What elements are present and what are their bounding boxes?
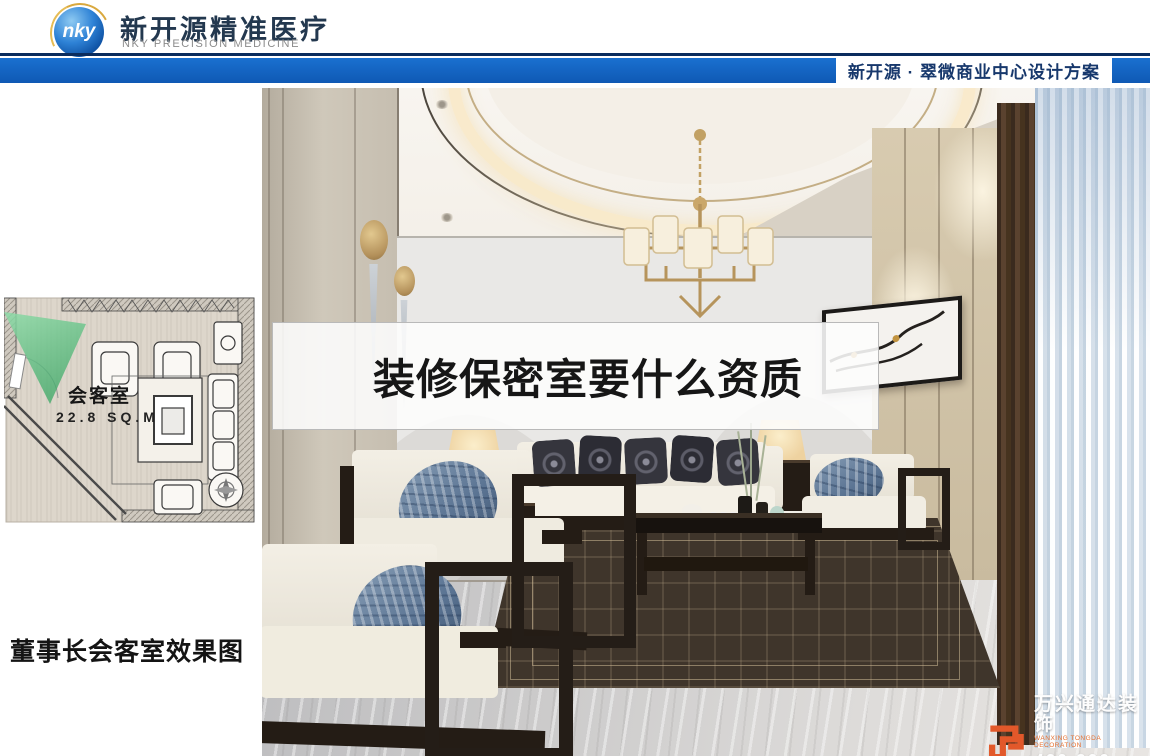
banner-bar-right bbox=[1112, 58, 1150, 83]
plan-table-inner bbox=[162, 408, 184, 434]
banner-bar-left bbox=[0, 58, 836, 83]
headline-text: 装修保密室要什么资质 bbox=[273, 346, 803, 407]
wall-ornament-icon bbox=[394, 266, 415, 296]
plan-sofa-cushion bbox=[213, 411, 234, 439]
logo-sphere-icon: nky bbox=[54, 7, 104, 57]
plan-caption: 董事长会客室效果图 bbox=[10, 632, 244, 668]
watermark-company-en: WANXING TONGDA DECORATION bbox=[1034, 736, 1150, 750]
chandelier bbox=[620, 128, 780, 343]
sofa-pillow bbox=[715, 438, 760, 487]
page: { "header": { "logo_monogram": "nky", "c… bbox=[0, 0, 1150, 756]
room-name: 会客室 bbox=[68, 384, 131, 407]
recessed-light-icon bbox=[435, 100, 449, 109]
plan-sofa-cushion bbox=[213, 380, 234, 408]
company-name-en: NKY PRECISION MEDICINE bbox=[122, 38, 300, 50]
armchair-arm-frame bbox=[898, 468, 950, 550]
armchair-arm-frame bbox=[425, 562, 573, 756]
plan-chair-bottom-cushion bbox=[162, 485, 193, 509]
watermark: 万兴通达装饰 WANXING TONGDA DECORATION 400-900… bbox=[985, 695, 1150, 756]
armchair-arm-inner bbox=[460, 632, 506, 648]
wall-ornament-icon bbox=[360, 220, 388, 260]
watermark-logo-icon bbox=[985, 719, 1026, 756]
watermark-phone: 400-900-4560 bbox=[1034, 752, 1150, 756]
recessed-light-icon bbox=[828, 223, 842, 232]
header: nky 新开源精准医疗 NKY PRECISION MEDICINE bbox=[0, 0, 1150, 53]
room-area: 22.8 SQ.M bbox=[56, 409, 159, 425]
table-top bbox=[630, 513, 822, 533]
sofa-pillow bbox=[669, 435, 714, 484]
plan-armchair-cushion bbox=[101, 352, 129, 384]
plan-sofa-cushion bbox=[213, 442, 234, 470]
header-divider-line bbox=[0, 53, 1150, 56]
floor-plan: 会客室 22.8 SQ.M bbox=[4, 292, 256, 524]
recessed-light-icon bbox=[440, 213, 454, 222]
armchair-left-near bbox=[262, 540, 570, 756]
plan-floor-lamp-bulb bbox=[221, 336, 235, 350]
watermark-company-cn: 万兴通达装饰 bbox=[1034, 695, 1150, 735]
headline-overlay: 装修保密室要什么资质 bbox=[272, 322, 879, 430]
grass-stem bbox=[750, 423, 752, 501]
sheer-curtain bbox=[1035, 88, 1150, 748]
logo-monogram: nky bbox=[63, 21, 96, 43]
project-title: 新开源 · 翠微商业中心设计方案 bbox=[836, 58, 1112, 83]
table-shelf bbox=[644, 557, 808, 571]
coffee-table bbox=[630, 493, 822, 603]
banner-bar: 新开源 · 翠微商业中心设计方案 bbox=[0, 58, 1150, 83]
